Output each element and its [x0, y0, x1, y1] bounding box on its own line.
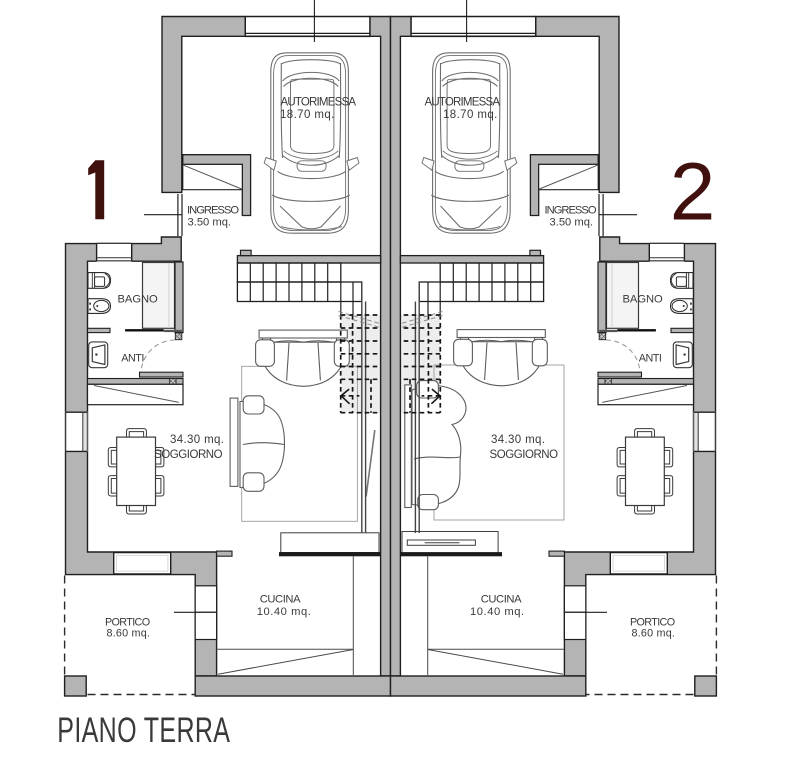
svg-text:SOGGIORNO: SOGGIORNO — [154, 449, 223, 461]
svg-text:3.50 mq.: 3.50 mq. — [188, 217, 232, 229]
svg-text:CUCINA: CUCINA — [260, 594, 301, 606]
svg-text:2: 2 — [670, 147, 716, 238]
svg-text:BAGNO: BAGNO — [118, 293, 159, 305]
svg-text:ANTI: ANTI — [121, 353, 144, 365]
svg-text:CUCINA: CUCINA — [481, 594, 522, 606]
svg-text:8.60 mq.: 8.60 mq. — [107, 628, 151, 640]
svg-text:34.30 mq.: 34.30 mq. — [170, 434, 224, 446]
svg-text:INGRESSO: INGRESSO — [545, 204, 597, 216]
svg-text:SOGGIORNO: SOGGIORNO — [490, 449, 559, 461]
svg-text:AUTORIMESSA: AUTORIMESSA — [281, 97, 357, 109]
svg-text:AUTORIMESSA: AUTORIMESSA — [425, 97, 501, 109]
svg-text:3.50 mq.: 3.50 mq. — [550, 217, 594, 229]
svg-text:18.70 mq.: 18.70 mq. — [443, 109, 498, 121]
svg-text:PIANO TERRA: PIANO TERRA — [57, 711, 230, 750]
svg-text:BAGNO: BAGNO — [623, 293, 664, 305]
svg-text:ANTI: ANTI — [639, 353, 662, 365]
svg-text:10.40 mq.: 10.40 mq. — [470, 606, 525, 618]
svg-text:INGRESSO: INGRESSO — [187, 204, 239, 216]
svg-text:18.70 mq.: 18.70 mq. — [280, 109, 335, 121]
svg-text:8.60 mq.: 8.60 mq. — [632, 628, 676, 640]
svg-text:10.40 mq.: 10.40 mq. — [257, 606, 312, 618]
svg-text:34.30 mq.: 34.30 mq. — [491, 434, 545, 446]
